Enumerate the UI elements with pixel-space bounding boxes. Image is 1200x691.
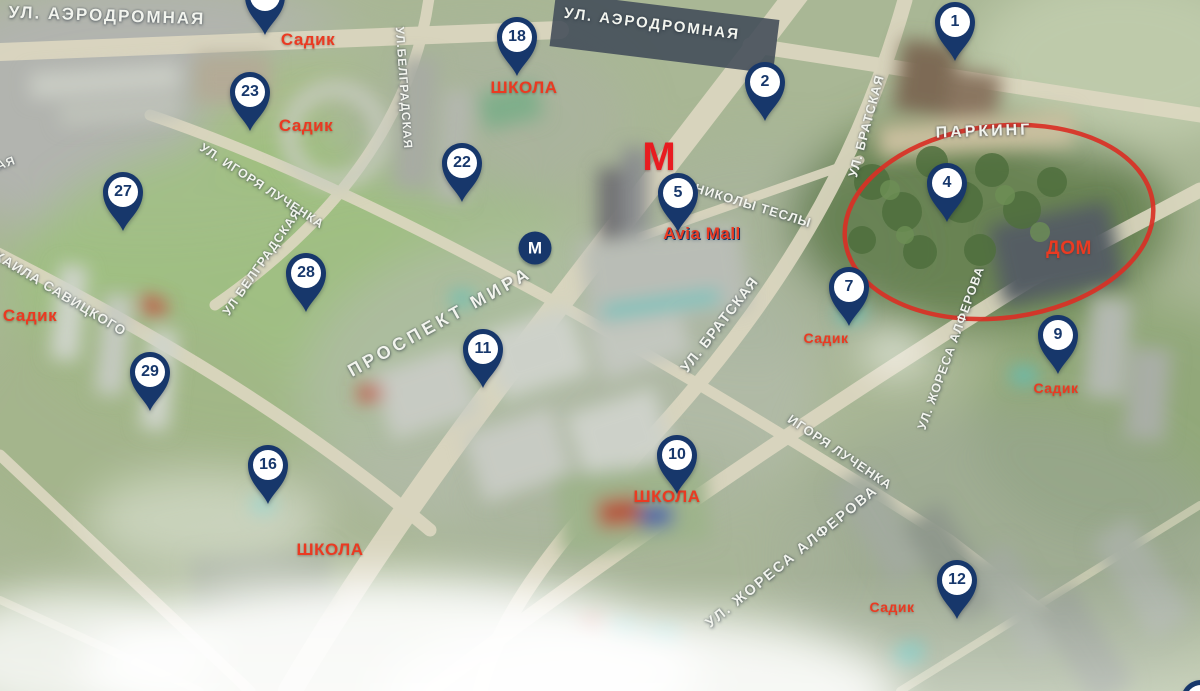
- highlight-ellipse: [0, 0, 1200, 691]
- map-pin-12[interactable]: 12: [934, 557, 980, 621]
- poi-label: Садик: [3, 306, 57, 326]
- map-pin-23[interactable]: 23: [227, 69, 273, 133]
- street-label: УЛ. АЭРОДРОМНАЯ: [8, 3, 205, 30]
- pin-number: 29: [127, 363, 173, 381]
- street-label: УЛ. ЖОРЕСА АЛФЕРОВА: [703, 483, 881, 632]
- masterplan-map: УЛ. АЭРОДРОМНАЯУЛ. АЭРОДРОМНАЯУЛ.БЕЛГРАД…: [0, 0, 1200, 691]
- map-pin-29[interactable]: 29: [127, 349, 173, 413]
- poi-label: Садик: [803, 330, 848, 346]
- map-pin-4[interactable]: 4: [924, 160, 970, 224]
- map-pin-18[interactable]: 18: [494, 14, 540, 78]
- pin-number: 2: [742, 73, 788, 91]
- poi-label: Садик: [279, 116, 333, 136]
- map-pin-partial[interactable]: [1178, 677, 1200, 691]
- pin-number: 12: [934, 571, 980, 589]
- map-pin-5[interactable]: 5: [655, 170, 701, 234]
- street-label: ПАРКИНГ: [935, 121, 1032, 142]
- metro-station-icon: М: [519, 232, 552, 265]
- poi-label: ДОМ: [1046, 238, 1092, 260]
- map-pin-1[interactable]: 1: [932, 0, 978, 63]
- map-pin-11[interactable]: 11: [460, 326, 506, 390]
- pin-number: 1: [932, 13, 978, 31]
- pin-number: 22: [439, 154, 485, 172]
- pin-number: 18: [494, 28, 540, 46]
- pin-number: 4: [924, 174, 970, 192]
- street-label: УЛ.БЕЛГРАДСКАЯ: [393, 26, 416, 149]
- street-label: УЛ. БРАТСКАЯ: [845, 73, 887, 179]
- map-pin-28[interactable]: 28: [283, 250, 329, 314]
- map-pin-15[interactable]: 15: [242, 0, 288, 37]
- street-label: ПРОСПЕКТ МИРА: [344, 263, 536, 382]
- street-label: УЛ. ИГОРЯ ЛУЧЕНКА: [197, 141, 327, 232]
- poi-label: Садик: [1033, 380, 1078, 396]
- street-label: АЯ: [0, 153, 17, 173]
- map-pin-16[interactable]: 16: [245, 442, 291, 506]
- pin-number: 28: [283, 264, 329, 282]
- map-pin-9[interactable]: 9: [1035, 312, 1081, 376]
- poi-label: ШКОЛА: [297, 540, 364, 560]
- pin-number: 23: [227, 83, 273, 101]
- pin-number: 27: [100, 183, 146, 201]
- map-pin-27[interactable]: 27: [100, 169, 146, 233]
- map-pin-10[interactable]: 10: [654, 432, 700, 496]
- street-label: УЛ. АЭРОДРОМНАЯ: [563, 5, 741, 43]
- pin-number: 11: [460, 340, 506, 358]
- poi-label: ШКОЛА: [491, 78, 558, 98]
- pin-number: 15: [242, 0, 288, 5]
- pin-number: 7: [826, 278, 872, 296]
- map-background: [0, 0, 1200, 691]
- pin-number: 9: [1035, 326, 1081, 344]
- street-label: УЛ. БРАТСКАЯ: [678, 274, 762, 376]
- map-pin-2[interactable]: 2: [742, 59, 788, 123]
- poi-label: Садик: [869, 599, 914, 615]
- pin-number: 5: [655, 184, 701, 202]
- pin-number: 10: [654, 446, 700, 464]
- street-label: ИГОРЯ ЛУЧЕНКА: [785, 411, 895, 492]
- pin-number: 16: [245, 456, 291, 474]
- map-pin-22[interactable]: 22: [439, 140, 485, 204]
- street-label: УЛ. ЖОРЕСА АЛФЕРОВА: [915, 264, 987, 431]
- poi-label: Садик: [281, 30, 335, 50]
- map-pin-7[interactable]: 7: [826, 264, 872, 328]
